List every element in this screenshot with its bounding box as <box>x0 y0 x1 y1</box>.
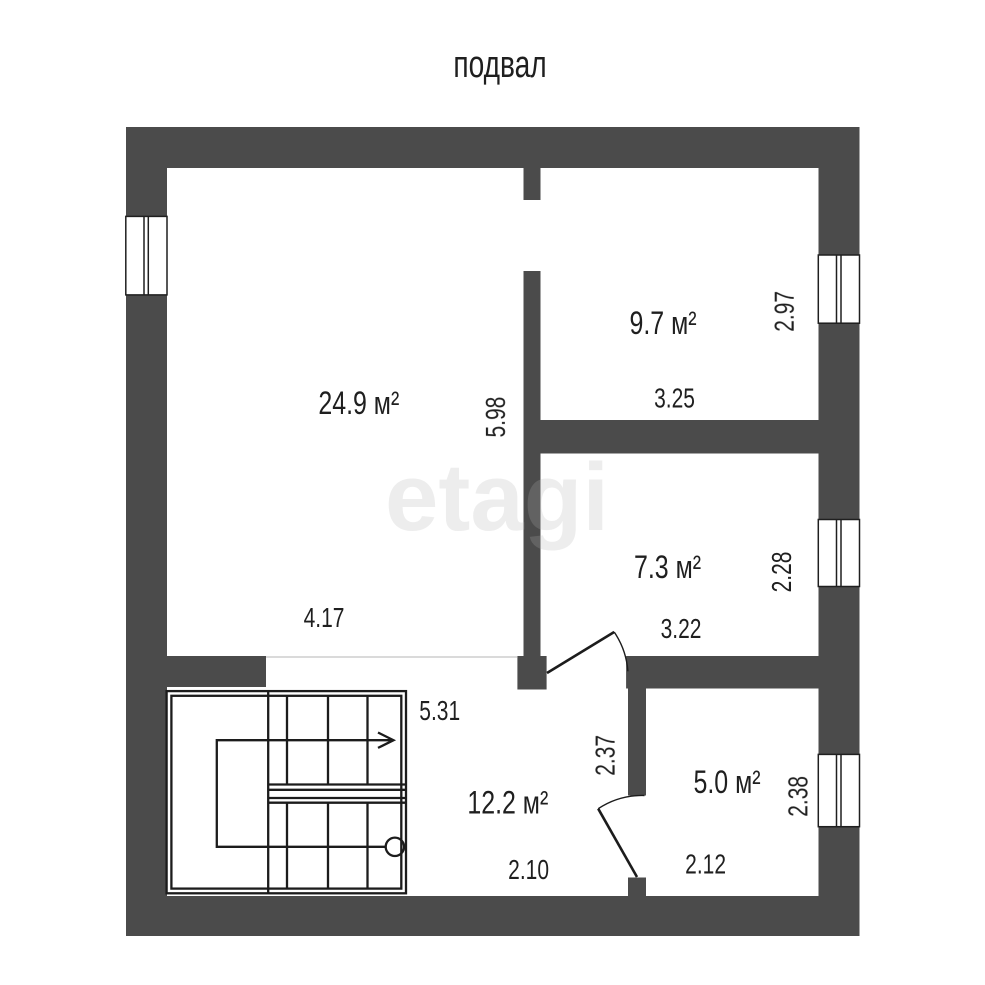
svg-text:24.9 м²: 24.9 м² <box>318 386 399 422</box>
svg-text:3.25: 3.25 <box>654 384 695 415</box>
svg-text:2.10: 2.10 <box>508 855 549 886</box>
svg-text:2.28: 2.28 <box>767 552 798 593</box>
svg-text:2.37: 2.37 <box>591 735 622 776</box>
svg-text:7.3 м²: 7.3 м² <box>634 550 701 586</box>
svg-text:9.7 м²: 9.7 м² <box>629 306 696 342</box>
svg-text:5.31: 5.31 <box>419 696 460 727</box>
svg-text:3.22: 3.22 <box>661 614 702 645</box>
svg-text:2.97: 2.97 <box>770 291 801 332</box>
svg-text:2.12: 2.12 <box>685 850 726 881</box>
svg-text:5.98: 5.98 <box>481 397 512 438</box>
svg-text:4.17: 4.17 <box>304 603 345 634</box>
svg-text:подвал: подвал <box>453 44 546 86</box>
svg-text:5.0 м²: 5.0 м² <box>693 765 760 801</box>
svg-text:2.38: 2.38 <box>784 776 815 817</box>
svg-text:12.2 м²: 12.2 м² <box>467 786 548 822</box>
svg-text:etagi: etagi <box>385 444 609 551</box>
